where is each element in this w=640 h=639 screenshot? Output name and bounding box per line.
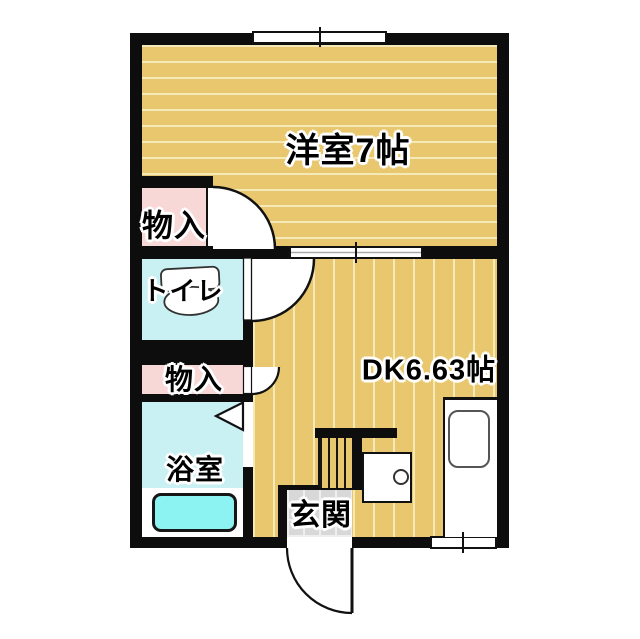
entrance-label: 玄関 <box>290 501 352 531</box>
closet-lower-label: 物入 <box>165 366 223 394</box>
floor-plan: 洋室7帖 DK6.63帖 物入 トイレ 物入 浴室 玄関 <box>0 0 640 639</box>
plan-linework <box>0 0 640 639</box>
washer-drain <box>394 470 408 484</box>
bath-folding-door <box>216 403 243 431</box>
toilet-label: トイレ <box>142 278 223 304</box>
western-room-label: 洋室7帖 <box>286 134 411 168</box>
bath-label: 浴室 <box>166 456 224 484</box>
dk-label: DK6.63帖 <box>362 357 496 386</box>
closet-upper-label: 物入 <box>142 211 206 242</box>
